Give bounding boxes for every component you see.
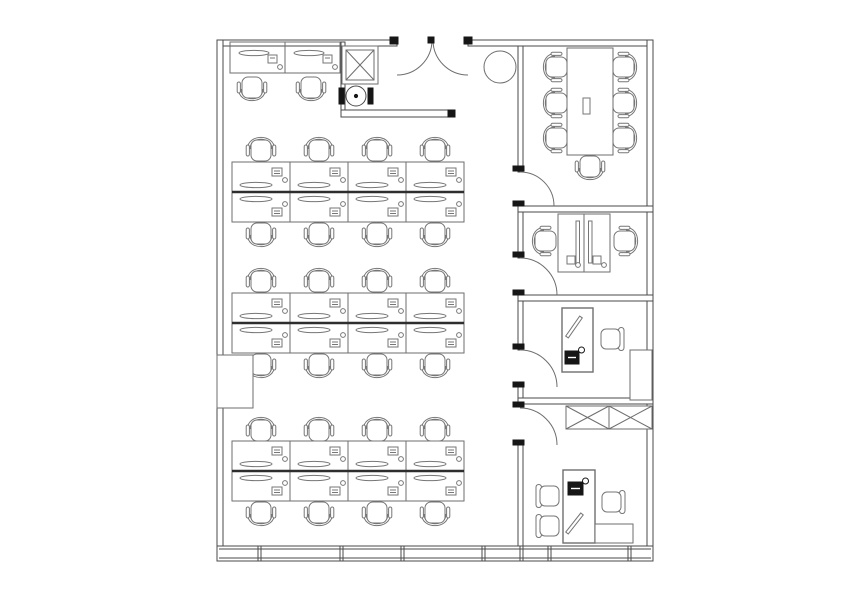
task-chair [420, 223, 450, 247]
mouse [399, 202, 404, 207]
task-chair [532, 226, 556, 256]
mouse [457, 202, 462, 207]
door-jamb-mark [513, 382, 524, 387]
keyboard [240, 182, 272, 187]
desk-phone [330, 299, 340, 307]
floor-plan [0, 0, 846, 600]
task-chair [543, 123, 567, 153]
keyboard [298, 327, 330, 332]
door-jamb-mark [390, 37, 398, 44]
keyboard [356, 313, 388, 318]
task-chair [420, 502, 450, 526]
mouse [341, 202, 346, 207]
workstation-top [240, 447, 287, 467]
workstation-bottom [240, 196, 287, 216]
door-jamb-mark [513, 166, 524, 171]
mouse [341, 333, 346, 338]
task-chair [246, 417, 276, 441]
task-chair [304, 137, 334, 161]
task-chair [246, 137, 276, 161]
table-phone [583, 98, 590, 114]
door-jamb-mark [513, 201, 524, 206]
office-3-door [520, 350, 557, 387]
keyboard [414, 196, 446, 201]
desk-phone [446, 487, 456, 495]
task-chair [246, 502, 276, 526]
entry-closet-wall-horizontal [341, 110, 455, 117]
task-chair [613, 123, 637, 153]
keyboard [240, 313, 272, 318]
guest-chair [536, 515, 559, 538]
workstation-bottom [298, 475, 345, 495]
desk-phone [330, 487, 340, 495]
workstation [294, 50, 337, 69]
keyboard [414, 313, 446, 318]
keyboard [414, 182, 446, 187]
top-wall-left [217, 40, 397, 46]
meeting-room-west-wall [518, 46, 523, 172]
keyboard [356, 182, 388, 187]
keyboard [298, 313, 330, 318]
workstation-top [240, 168, 287, 188]
mouse [457, 481, 462, 486]
mouse [602, 263, 607, 268]
monitor [589, 221, 593, 263]
mouse [278, 65, 283, 70]
desk-phone [330, 339, 340, 347]
keyboard [298, 475, 330, 480]
door-jamb-mark [513, 252, 524, 257]
top-wall-right [468, 40, 653, 46]
mouse [457, 178, 462, 183]
task-chair [304, 268, 334, 292]
desk-phone [330, 447, 340, 455]
desk-bank-1 [232, 162, 464, 222]
keyboard [414, 475, 446, 480]
mouse [457, 309, 462, 314]
desk-bank-3 [232, 441, 464, 501]
mouse [457, 457, 462, 462]
workstation-top [298, 447, 345, 467]
task-chair [304, 417, 334, 441]
task-chair [420, 268, 450, 292]
task-chair [237, 77, 267, 101]
workstation-top [414, 447, 461, 467]
task-chair [304, 223, 334, 247]
door-jamb-mark [513, 344, 524, 349]
desk-phone [330, 168, 340, 176]
task-chair [614, 226, 638, 256]
keyboard [298, 196, 330, 201]
desk-phone [272, 208, 282, 216]
keyboard [356, 461, 388, 466]
left-wall [217, 40, 223, 546]
workstation-bottom [414, 327, 461, 347]
workstation-bottom [414, 196, 461, 216]
task-chair [296, 77, 326, 101]
office-3-cabinet [630, 350, 652, 400]
desk-phone [388, 447, 398, 455]
door-jamb-mark [448, 110, 455, 117]
mouse [283, 333, 288, 338]
mouse [341, 178, 346, 183]
task-chair [362, 137, 392, 161]
guest-chair [602, 491, 625, 514]
task-chair [362, 502, 392, 526]
keyboard [356, 327, 388, 332]
task-chair [420, 417, 450, 441]
workstation-bottom [414, 475, 461, 495]
office-2p-south-wall [518, 295, 653, 301]
task-chair [362, 354, 392, 378]
guest-chair [536, 485, 559, 508]
keyboard [298, 461, 330, 466]
pantry-counter [217, 355, 253, 408]
office-exec-door [520, 408, 557, 445]
workstation-bottom [356, 475, 403, 495]
phone-handset [583, 478, 589, 484]
desk-bank-2 [232, 293, 464, 353]
guest-chair [601, 328, 624, 351]
mouse [399, 333, 404, 338]
desk-phone [272, 447, 282, 455]
storage-cabinets [566, 406, 652, 429]
task-chair [420, 354, 450, 378]
task-chair [613, 52, 637, 82]
water-dispenser-side [339, 88, 344, 104]
desk-phone [446, 447, 456, 455]
desk-phone [446, 339, 456, 347]
mouse [399, 309, 404, 314]
desk-phone [446, 208, 456, 216]
plant [484, 51, 516, 83]
workstation-bottom [298, 327, 345, 347]
mouse [457, 333, 462, 338]
meeting-room-south-wall [518, 206, 653, 212]
workstation-bottom [298, 196, 345, 216]
office-2p-door [520, 258, 557, 295]
task-chair [543, 88, 567, 118]
workstation-bottom [240, 475, 287, 495]
workstation-top [356, 168, 403, 188]
task-chair [246, 268, 276, 292]
mouse [341, 457, 346, 462]
mouse [399, 457, 404, 462]
desk-phone [272, 299, 282, 307]
monitor [576, 221, 580, 263]
workstation-top [240, 299, 287, 319]
workstation-bottom [356, 196, 403, 216]
desk-phone [388, 208, 398, 216]
desk-phone [330, 208, 340, 216]
door-jamb-mark [513, 290, 524, 295]
keyboard [240, 461, 272, 466]
mouse [576, 263, 581, 268]
corridor-wall-seg-3 [518, 387, 523, 398]
water-dispenser-center [354, 94, 357, 97]
desk-phone [388, 168, 398, 176]
desk-phone [323, 55, 332, 63]
entrance-door-left [397, 40, 432, 75]
mouse [283, 309, 288, 314]
door-jamb-mark [513, 402, 524, 407]
wall-desk-pair [230, 42, 340, 73]
desk-phone [272, 339, 282, 347]
office-floor-plan-page [0, 0, 846, 600]
task-chair [613, 88, 637, 118]
mouse [399, 481, 404, 486]
exec-return-cabinet [595, 524, 633, 543]
entrance-door-right [433, 40, 468, 75]
mouse [283, 481, 288, 486]
door-jamb-mark [513, 440, 524, 445]
corridor-wall-seg-4 [518, 445, 523, 546]
keyboard [240, 327, 272, 332]
desk-phone [272, 168, 282, 176]
phone-handset [579, 347, 585, 353]
workstation-bottom [240, 327, 287, 347]
workstation-top [414, 299, 461, 319]
mouse [283, 202, 288, 207]
task-chair [362, 268, 392, 292]
task-chair [246, 223, 276, 247]
desk-phone [567, 256, 575, 264]
workstation-top [298, 168, 345, 188]
keyboard [414, 327, 446, 332]
workstation-top [414, 168, 461, 188]
workstation [239, 50, 282, 69]
desk-phone [446, 299, 456, 307]
task-chair [304, 354, 334, 378]
desk-phone [272, 487, 282, 495]
keyboard [240, 196, 272, 201]
keyboard [294, 50, 324, 55]
entry-cabinet [342, 46, 378, 84]
door-jamb-mark [428, 37, 434, 43]
mouse [399, 178, 404, 183]
water-dispenser [339, 86, 373, 106]
meeting-room-door [520, 172, 554, 206]
keyboard [240, 475, 272, 480]
task-chair [543, 52, 567, 82]
workstation-top [298, 299, 345, 319]
desk-phone [388, 339, 398, 347]
keyboard [414, 461, 446, 466]
workstation-bottom [356, 327, 403, 347]
right-wall [647, 40, 653, 546]
task-chair [362, 223, 392, 247]
mouse [341, 309, 346, 314]
workstation-top [356, 447, 403, 467]
task-chair [575, 156, 605, 180]
corridor-wall-seg-2 [518, 295, 523, 350]
keyboard [356, 475, 388, 480]
corridor-wall-seg-1 [518, 212, 523, 258]
desk-phone [268, 55, 277, 63]
window-band [217, 546, 653, 561]
mouse [333, 65, 338, 70]
desk-phone [388, 487, 398, 495]
workstation-top [356, 299, 403, 319]
keyboard [239, 50, 269, 55]
keyboard [298, 182, 330, 187]
task-chair [362, 417, 392, 441]
mouse [283, 178, 288, 183]
mouse [341, 481, 346, 486]
desk-phone [388, 299, 398, 307]
task-chair [304, 502, 334, 526]
mouse [283, 457, 288, 462]
water-dispenser-side [368, 88, 373, 104]
task-chair [420, 137, 450, 161]
desk-phone [593, 256, 601, 264]
keyboard [356, 196, 388, 201]
door-jamb-mark [464, 37, 472, 44]
desk-phone [446, 168, 456, 176]
